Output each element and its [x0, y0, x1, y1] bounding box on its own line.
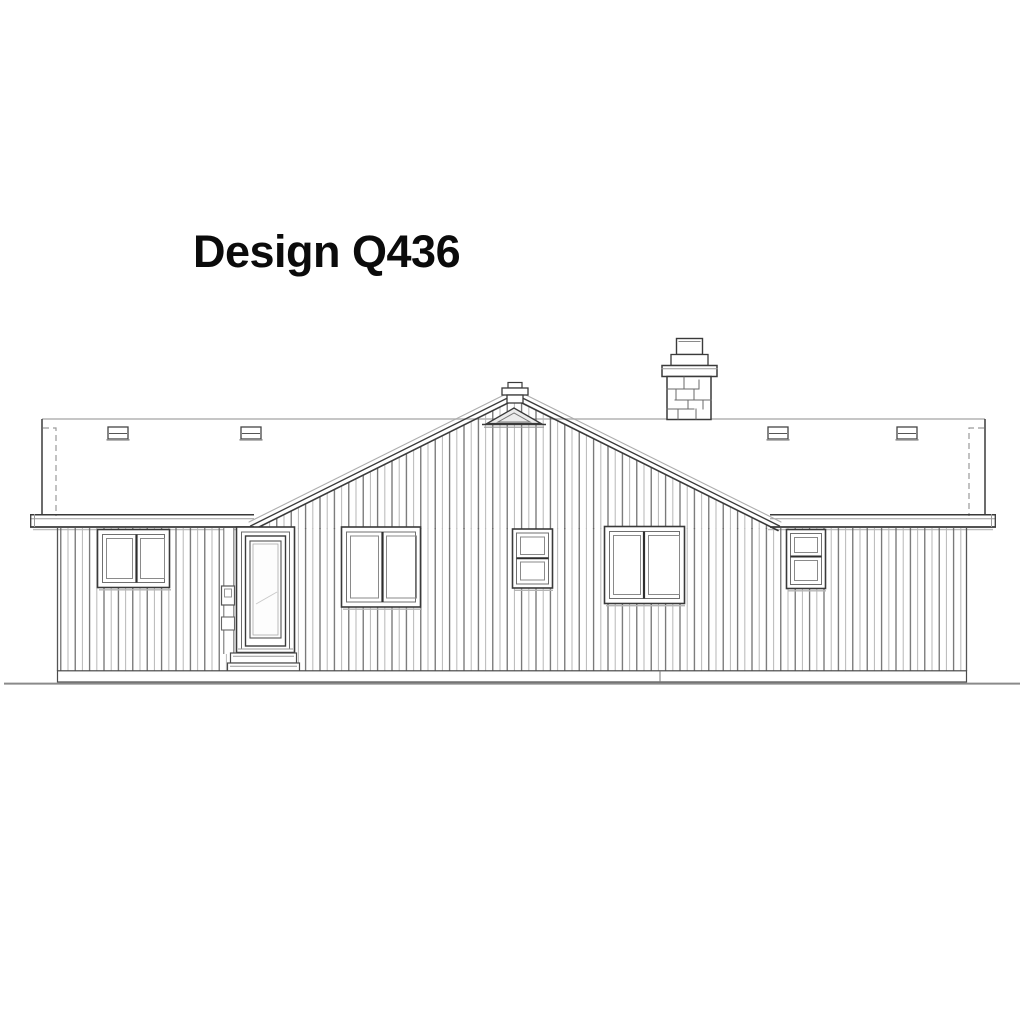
- roof-finial: [502, 383, 528, 404]
- left-hidden-line: [43, 428, 56, 516]
- roof-vent: [767, 427, 790, 440]
- door-glass: [250, 541, 281, 638]
- entry-door: [228, 527, 300, 673]
- window-left-wing: [98, 530, 172, 590]
- left-wing-roof: [30, 419, 263, 530]
- right-fascia: [768, 514, 996, 530]
- utility-box: [222, 617, 235, 630]
- roof-vent: [896, 427, 919, 440]
- right-hidden-line: [969, 428, 984, 516]
- door-side-trim: [222, 528, 235, 654]
- foundation-band: [58, 671, 967, 682]
- chimney: [662, 339, 717, 420]
- window-left-of-center: [342, 527, 423, 609]
- left-fascia: [30, 514, 256, 530]
- window-center-small: [513, 529, 554, 590]
- roof-vent: [107, 427, 130, 440]
- drawing-sheet: Design Q436: [0, 0, 1024, 1024]
- right-wing-roof: [767, 419, 997, 530]
- window-right-of-center: [605, 527, 686, 606]
- house-elevation-drawing: [0, 0, 1024, 1024]
- window-right-wing: [787, 530, 827, 591]
- door-steps: [228, 653, 300, 673]
- roof-vent: [240, 427, 263, 440]
